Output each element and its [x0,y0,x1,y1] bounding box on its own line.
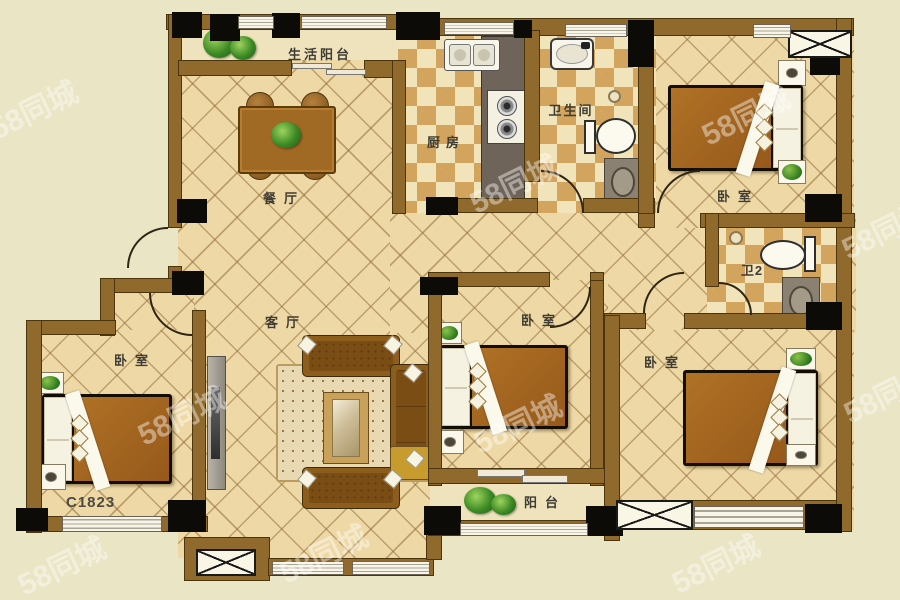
washbasin-icon [550,38,594,70]
wall [705,213,719,287]
window-lines [694,506,804,528]
column [172,271,204,295]
wall [168,14,182,228]
room-label-kitchen: 厨房 [408,132,484,151]
floor-plan: 生活阳台 厨房 卫生间 卧室 餐厅 卫2 客厅 卧室 卧室 卧室 阳台 C182… [0,0,900,600]
nightstand-icon [778,60,806,86]
floor-drain-icon [729,231,743,245]
room-label-bedroom-top-right: 卧室 [698,186,778,205]
window-cross [196,549,256,576]
window-lines [444,22,514,35]
column [272,13,300,38]
room-label-bedroom-bottom-right: 卧室 [625,352,705,371]
room-label-living-balcony: 生活阳台 [258,44,382,63]
toilet-icon [584,120,596,154]
nightstand-icon [786,444,816,466]
window-cross [616,500,693,530]
unit-code: C1823 [66,494,115,511]
watermark: 58同城 [9,524,112,600]
wall [638,213,655,228]
room-label-dining: 餐厅 [244,188,324,207]
window-lines [352,561,430,575]
column [168,500,206,532]
coffee-table-icon [323,392,369,464]
door-arc [644,273,684,313]
door-arc [541,171,583,213]
room-label-bedroom-left: 卧室 [95,350,175,369]
window-lines [62,516,162,532]
window-lines [753,24,791,38]
bed-icon [668,85,803,171]
window-lines [565,24,627,37]
column [806,302,842,330]
column [805,504,842,533]
nightstand-icon [778,160,806,184]
wall [836,18,852,532]
window-lines [272,561,344,575]
kitchen-sink-icon [444,39,500,71]
sliding-door-icon [326,69,366,75]
column [424,506,461,535]
column [805,194,842,222]
toilet-icon [804,236,816,272]
room-label-bathroom: 卫生间 [528,100,614,119]
column [420,277,458,295]
watermark: 58同城 [0,68,84,148]
window-lines [238,16,274,29]
door-arc [719,283,751,315]
sliding-door-icon [477,469,525,477]
watermark: 58同城 [663,522,766,600]
tv-cabinet-icon [207,356,226,490]
sliding-door-icon [522,475,568,483]
nightstand-icon [786,348,816,370]
column [396,12,440,40]
column [514,20,532,38]
wall [392,60,406,214]
wall [192,310,206,518]
room-label-bathroom2: 卫2 [730,260,774,279]
window-lines [460,523,588,536]
window-lines [301,16,387,29]
room-label-bedroom-middle: 卧室 [502,310,582,329]
room-label-living: 客厅 [246,312,326,331]
stove-icon [487,90,525,144]
bed-icon [440,345,568,429]
room-label-balcony: 阳台 [505,492,585,511]
door-arc [150,293,192,335]
column [172,12,202,38]
column [628,20,654,67]
wall [428,280,442,486]
wall [26,320,42,533]
door-arc [658,171,700,213]
column [177,199,207,223]
toilet-icon [596,118,636,154]
column [426,197,458,215]
window-cross [788,30,852,58]
column [16,508,48,531]
column [210,14,240,41]
wall [590,280,604,486]
plant-icon [271,122,301,148]
sofa-icon [302,467,400,509]
door-arc [128,228,168,268]
